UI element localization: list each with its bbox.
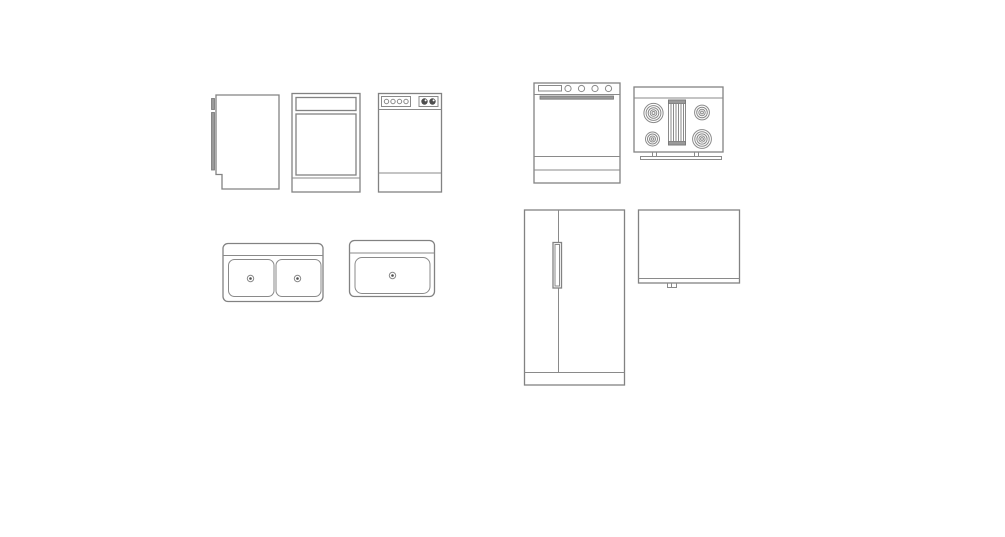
burner-back-left (644, 103, 663, 122)
griddle (669, 100, 686, 145)
knob-left-pointer (425, 99, 427, 101)
knob-4 (605, 85, 611, 91)
griddle-top-bar (669, 100, 686, 104)
symbol-dishwasher-front-controls[interactable] (379, 94, 442, 193)
cabinet-outline (639, 210, 740, 283)
base-bar (641, 157, 722, 160)
fridge-outline (525, 210, 625, 385)
oven-handle (540, 96, 614, 99)
door-panel (296, 114, 356, 175)
door-handle (553, 243, 562, 289)
knob-left (421, 98, 427, 104)
burner-front-left (646, 132, 660, 146)
appliance-drawing-svg (0, 0, 1005, 537)
griddle-bottom-bar (669, 142, 686, 146)
drawing-canvas (0, 0, 1005, 537)
sink-rim (350, 241, 435, 297)
control-panel (296, 98, 356, 111)
cabinet-outline (216, 95, 279, 189)
sink-rim (223, 244, 323, 302)
symbol-range-top[interactable] (634, 87, 723, 160)
knob-right (429, 98, 435, 104)
door-edge-lower (212, 113, 215, 171)
button-1 (384, 99, 388, 103)
door-edge-upper (212, 99, 215, 110)
knob-right-pointer (433, 99, 435, 101)
burner-front-right (693, 130, 712, 149)
button-3 (397, 99, 401, 103)
symbol-range-front[interactable] (534, 83, 620, 183)
clock-display (539, 86, 562, 92)
button-4 (404, 99, 408, 103)
symbol-dishwasher-side[interactable] (212, 95, 280, 189)
symbol-single-sink-top[interactable] (350, 241, 435, 297)
burner-back-right (695, 105, 710, 120)
cabinet-outline (292, 94, 360, 193)
knob-2 (578, 85, 584, 91)
base-foot (668, 283, 677, 288)
base-stand (641, 152, 722, 160)
knob-1 (565, 85, 571, 91)
button-box (382, 97, 411, 107)
button-2 (391, 99, 395, 103)
cabinet-outline (379, 94, 442, 193)
symbol-refrigerator-front[interactable] (525, 210, 625, 385)
symbol-refrigerator-side[interactable] (639, 210, 740, 288)
symbol-dishwasher-front[interactable] (292, 94, 360, 193)
symbol-double-sink-top[interactable] (223, 244, 323, 302)
knob-3 (592, 85, 598, 91)
